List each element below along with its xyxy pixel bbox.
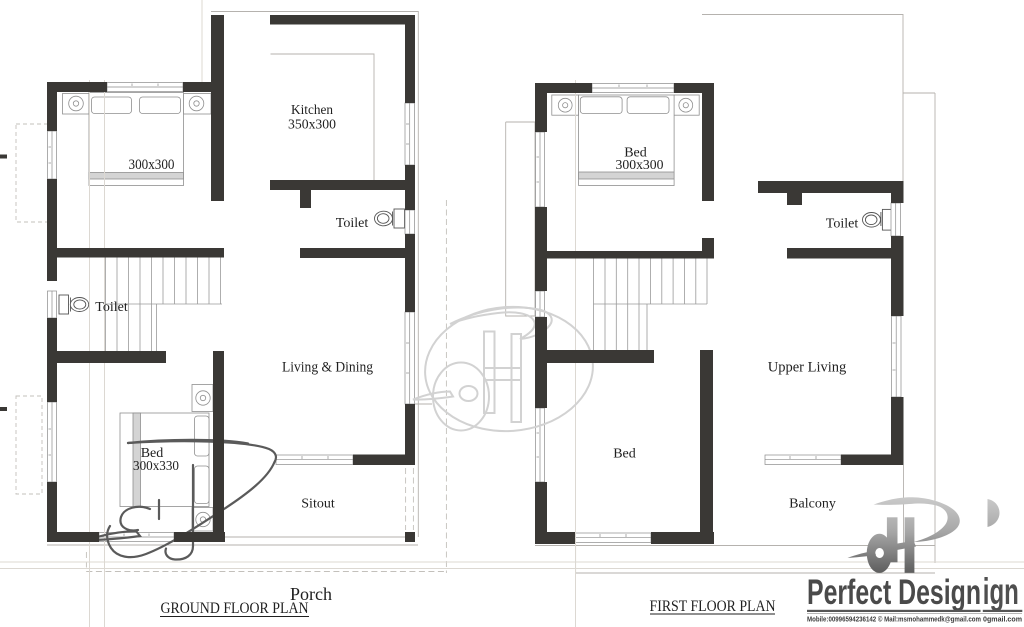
svg-text:0gmail.com: 0gmail.com [983, 615, 1022, 624]
svg-text:GROUND FLOOR PLAN: GROUND FLOOR PLAN [161, 600, 309, 617]
svg-text:FIRST FLOOR PLAN: FIRST FLOOR PLAN [650, 598, 776, 615]
svg-text:Upper Living: Upper Living [768, 360, 847, 376]
svg-text:Sitout: Sitout [301, 497, 335, 512]
svg-text:350x300: 350x300 [288, 117, 336, 132]
svg-text:300x330: 300x330 [133, 458, 179, 473]
svg-text:Balcony: Balcony [789, 497, 836, 512]
svg-text:300x300: 300x300 [616, 157, 664, 172]
svg-text:Perfect Design: Perfect Design [807, 573, 981, 612]
svg-text:Toilet: Toilet [826, 217, 859, 232]
svg-text:Living & Dining: Living & Dining [282, 360, 373, 376]
svg-text:Toilet: Toilet [336, 216, 369, 231]
svg-text:ign: ign [983, 571, 1019, 612]
svg-text:300x300: 300x300 [129, 157, 175, 173]
svg-text:Toilet: Toilet [95, 300, 128, 315]
svg-text:Bed: Bed [613, 447, 636, 462]
svg-text:Mobile:00996594236142 © Mail:m: Mobile:00996594236142 © Mail:msmohammedk… [807, 615, 981, 624]
